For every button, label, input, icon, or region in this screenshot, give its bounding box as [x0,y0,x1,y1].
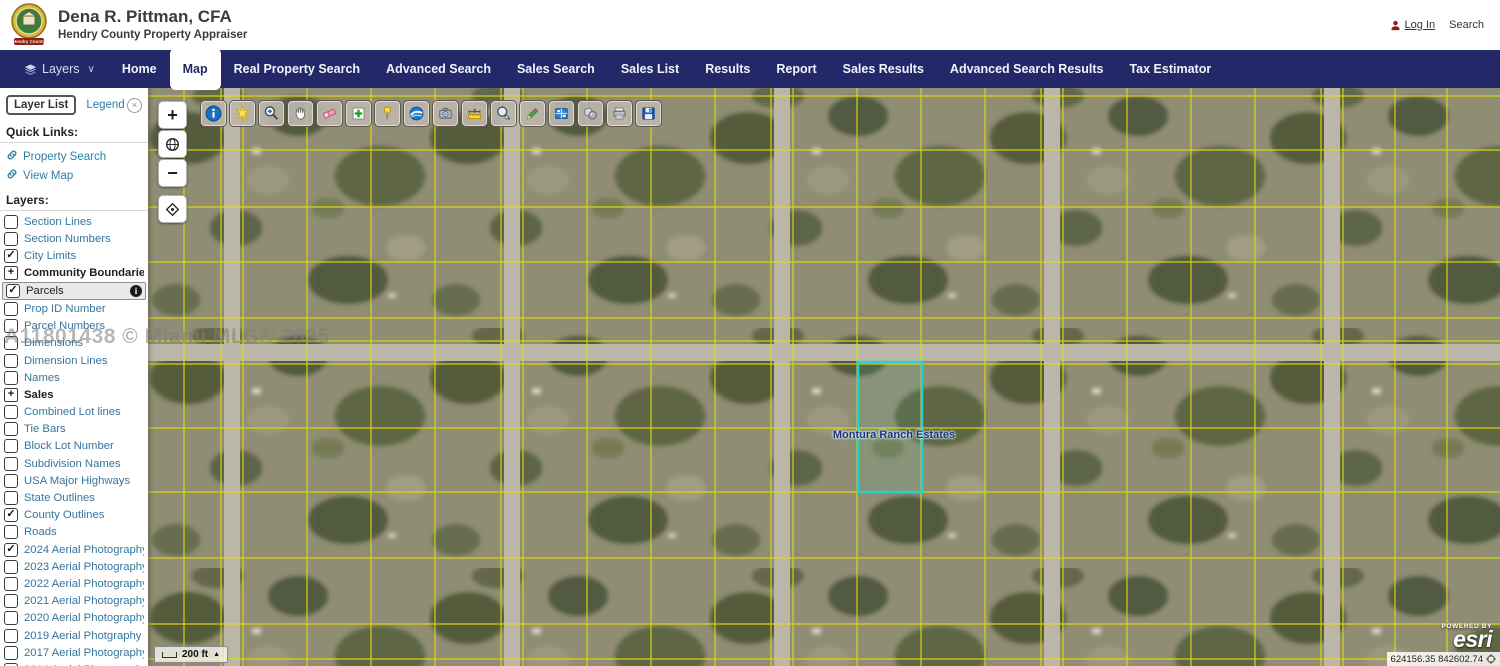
scale-caret-icon: ▲ [213,651,220,658]
layer-names[interactable]: Names [0,369,148,386]
quick-links-list: Property SearchView Map [0,143,148,187]
svg-text:Hendry County: Hendry County [13,39,46,44]
checkbox[interactable] [4,215,18,229]
checkbox[interactable] [4,611,18,625]
checkbox[interactable] [4,405,18,419]
login-link[interactable]: Log In [1390,19,1436,31]
nav-item-sales-list[interactable]: Sales List [608,50,692,88]
nav-item-map[interactable]: Map [170,48,221,90]
link-icon [6,149,18,164]
layer-county-outlines[interactable]: ✓County Outlines [0,507,148,524]
checkbox[interactable] [4,474,18,488]
layer-city-limits[interactable]: ✓City Limits [0,247,148,264]
checkbox[interactable] [4,491,18,505]
checkbox[interactable]: ✓ [4,508,18,522]
esri-logo: esri [1442,630,1492,650]
layer-parcels[interactable]: ✓Parcelsi [2,282,146,301]
layers-icon [24,63,37,76]
layer-tie-bars[interactable]: Tie Bars [0,421,148,438]
checkbox[interactable] [4,560,18,574]
nav-layers-label: Layers [42,62,80,76]
layer-parcel-numbers[interactable]: Parcel Numbers [0,318,148,335]
add-icon[interactable] [345,100,372,127]
chevron-down-icon: ∨ [88,64,95,75]
layer-state-outlines[interactable]: State Outlines [0,489,148,506]
checkbox[interactable] [4,354,18,368]
layer-2023-aerial-photography[interactable]: 2023 Aerial Photography [0,558,148,575]
checkbox[interactable] [4,577,18,591]
scale-widget[interactable]: 200 ft ▲ [154,646,228,663]
tab-layer-list[interactable]: Layer List [6,95,76,115]
google-earth-icon[interactable] [403,100,430,127]
quick-link-view-map[interactable]: View Map [0,166,148,185]
checkbox[interactable]: ✓ [4,249,18,263]
zoom-in-tool-icon[interactable] [258,100,285,127]
pan-icon[interactable] [287,100,314,127]
layer-2024-aerial-photography[interactable]: ✓2024 Aerial Photography [0,541,148,558]
subdivision-label: Montura Ranch Estates [824,429,964,441]
scale-bar-icon [162,652,177,658]
aerial-map [148,88,1500,666]
crosshair-icon[interactable] [1486,654,1496,664]
page-subtitle: Hendry County Property Appraiser [58,29,247,42]
nav-item-home[interactable]: Home [109,50,170,88]
nav-item-report[interactable]: Report [763,50,829,88]
checkbox[interactable] [4,422,18,436]
nav-item-advanced-search-results[interactable]: Advanced Search Results [937,50,1117,88]
checkbox[interactable] [4,371,18,385]
info-icon[interactable]: i [130,285,142,297]
link-icon [6,168,18,183]
map-toolbar: ? [200,100,662,127]
checkbox[interactable]: ✓ [6,284,20,298]
expand-box[interactable]: + [4,266,18,280]
quick-link-property-search[interactable]: Property Search [0,147,148,166]
selected-parcel[interactable] [858,362,922,492]
nav-items: HomeMapReal Property SearchAdvanced Sear… [109,48,1224,90]
coordinates-widget: 624156.35 842602.74 [1387,652,1500,666]
checkbox[interactable] [4,319,18,333]
scale-label: 200 ft [182,649,208,660]
nav-item-results[interactable]: Results [692,50,763,88]
header: Hendry County Dena R. Pittman, CFA Hendr… [0,0,1500,51]
layer-roads[interactable]: Roads [0,524,148,541]
layer-2020-aerial-photography[interactable]: 2020 Aerial Photography [0,610,148,627]
checkbox[interactable] [4,232,18,246]
layers-heading: Layers: [0,187,148,211]
checkbox[interactable] [4,629,18,643]
zoom-in-button[interactable]: + [158,101,187,129]
save-icon[interactable] [635,100,662,127]
zoom-out-button[interactable]: − [158,159,187,187]
layer-2014-aerial-photography[interactable]: 2014 Aerial Photography [0,661,148,666]
main-nav: Layers ∨ HomeMapReal Property SearchAdva… [0,50,1500,88]
svg-text:?: ? [473,109,477,115]
checkbox[interactable]: ✓ [4,543,18,557]
search-link[interactable]: Search [1449,19,1484,31]
home-extent-button[interactable] [158,130,187,158]
layer-dimension-lines[interactable]: Dimension Lines [0,352,148,369]
layer-usa-major-highways[interactable]: USA Major Highways [0,472,148,489]
locate-button[interactable] [158,195,187,223]
globe-icon [165,137,180,152]
layer-2019-aerial-photgraphy[interactable]: 2019 Aerial Photgraphy [0,627,148,644]
page-title: Dena R. Pittman, CFA [58,8,247,27]
layer-2022-aerial-photography[interactable]: 2022 Aerial Photography [0,575,148,592]
layers-list: Section LinesSection Numbers✓City Limits… [0,211,148,666]
checkbox[interactable] [4,646,18,660]
checkbox[interactable] [4,594,18,608]
close-icon[interactable]: × [127,98,142,113]
eraser-icon[interactable] [316,100,343,127]
flash-icon[interactable] [229,100,256,127]
layer-community-boundaries[interactable]: +Community Boundaries [0,265,148,282]
checkbox[interactable] [4,457,18,471]
layer-subdivision-names[interactable]: Subdivision Names [0,455,148,472]
search-magnifier-icon[interactable] [490,100,517,127]
pushpin-icon[interactable] [374,100,401,127]
nav-layers-menu[interactable]: Layers ∨ [10,62,109,76]
checkbox[interactable] [4,302,18,316]
checkbox[interactable] [4,336,18,350]
measure-icon[interactable]: ? [461,100,488,127]
quick-links-heading: Quick Links: [0,119,148,143]
locate-icon [165,202,180,217]
esri-attribution: POWERED BY esri [1442,623,1492,650]
layer-2021-aerial-photography[interactable]: 2021 Aerial Photography [0,593,148,610]
nav-item-real-property-search[interactable]: Real Property Search [221,50,373,88]
tab-legend[interactable]: Legend [86,99,124,111]
coordinates-value: 624156.35 842602.74 [1391,654,1483,665]
draw-icon[interactable] [519,100,546,127]
checkbox[interactable] [4,439,18,453]
layer-section-numbers[interactable]: Section Numbers [0,230,148,247]
nav-item-tax-estimator[interactable]: Tax Estimator [1116,50,1224,88]
layer-section-lines[interactable]: Section Lines [0,213,148,230]
layer-sales[interactable]: +Sales [0,386,148,403]
person-icon [1390,20,1401,31]
expand-box[interactable]: + [4,388,18,402]
zoom-controls: + − [158,101,187,223]
layer-panel: Layer List Legend × Quick Links: Propert… [0,88,148,666]
extent-icon[interactable] [548,100,575,127]
layer-prop-id-number[interactable]: Prop ID Number [0,300,148,317]
map-canvas[interactable]: + − ? Montura Ranch Estates 200 ft ▲ POW… [148,88,1500,666]
nav-item-sales-search[interactable]: Sales Search [504,50,608,88]
camera-icon[interactable] [432,100,459,127]
checkbox[interactable] [4,525,18,539]
layer-dimensions[interactable]: Dimensions [0,335,148,352]
print-icon[interactable] [606,100,633,127]
nav-item-advanced-search[interactable]: Advanced Search [373,50,504,88]
county-seal-logo: Hendry County [8,2,50,48]
layer-2017-aerial-photography[interactable]: 2017 Aerial Photography [0,644,148,661]
nav-item-sales-results[interactable]: Sales Results [830,50,937,88]
layer-combined-lot-lines[interactable]: Combined Lot lines [0,403,148,420]
buffer-icon[interactable] [577,100,604,127]
layer-block-lot-number[interactable]: Block Lot Number [0,438,148,455]
info-icon[interactable] [200,100,227,127]
login-label: Log In [1405,19,1436,31]
